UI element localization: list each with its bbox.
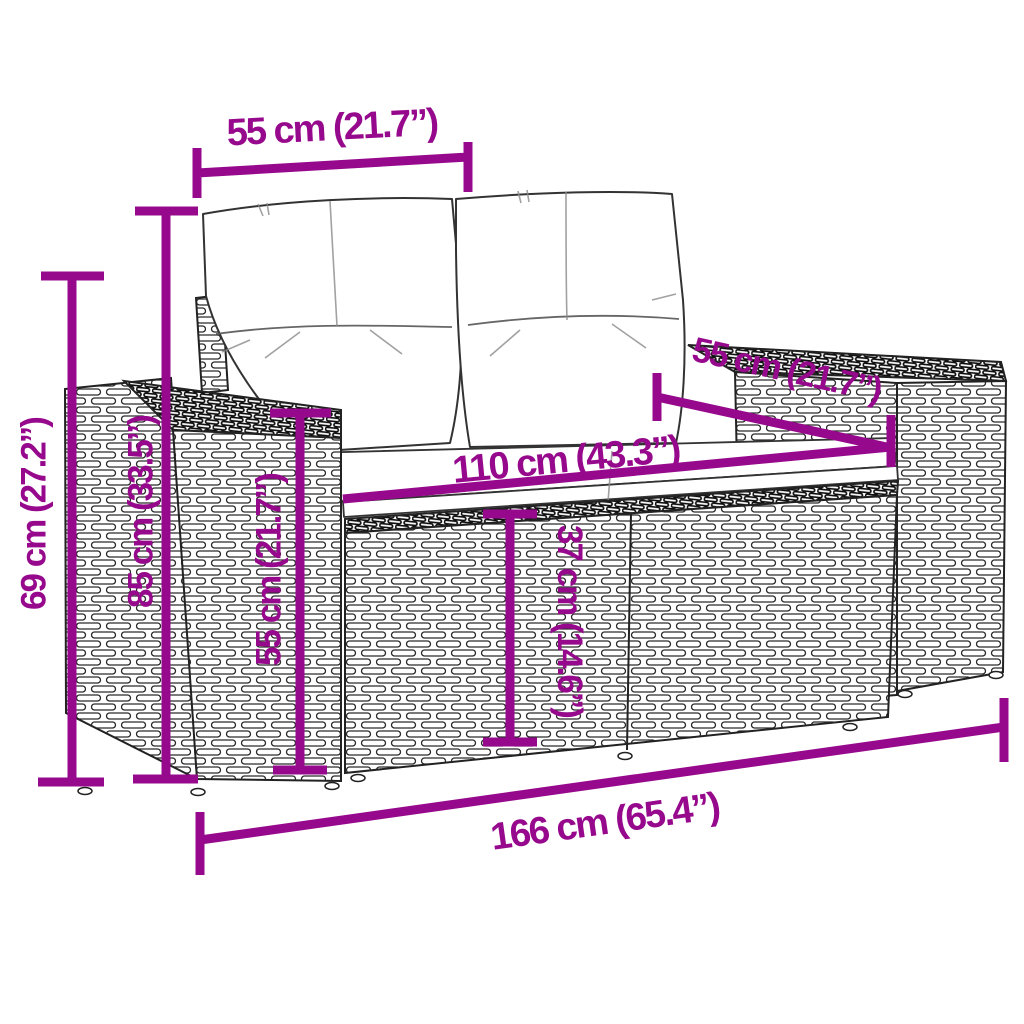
diagram-canvas: 55 cm (21.7”) 69 cm (27.2”) 85 cm (33.5”…: [0, 0, 1024, 1024]
dim-cushion-width-label: 55 cm (21.7”): [226, 102, 439, 155]
seat-front-panels: [345, 495, 897, 773]
dim-cushion-width: 55 cm (21.7”): [197, 102, 468, 198]
dim-back-height-label: 85 cm (33.5”): [121, 416, 160, 608]
sofa-illustration: [65, 190, 1006, 796]
seat-foot: [351, 775, 365, 782]
seat-foot: [618, 753, 632, 760]
dim-armrest-height-label: 69 cm (27.2”): [14, 418, 53, 610]
dim-side-height-label: 55 cm (21.7”): [249, 474, 288, 666]
sofa-dimension-diagram: 55 cm (21.7”) 69 cm (27.2”) 85 cm (33.5”…: [0, 0, 1024, 1024]
left-armrest-foot: [191, 789, 205, 796]
dim-seat-height-label: 37 cm (14.6”): [550, 525, 589, 717]
seat-foot: [843, 724, 857, 731]
right-armrest-side-face: [897, 381, 1006, 691]
left-armrest-foot: [78, 788, 92, 795]
right-armrest-foot: [989, 672, 1003, 679]
back-cushion-right: [456, 190, 685, 447]
right-armrest-foot: [898, 691, 912, 698]
left-armrest-foot: [325, 783, 339, 790]
